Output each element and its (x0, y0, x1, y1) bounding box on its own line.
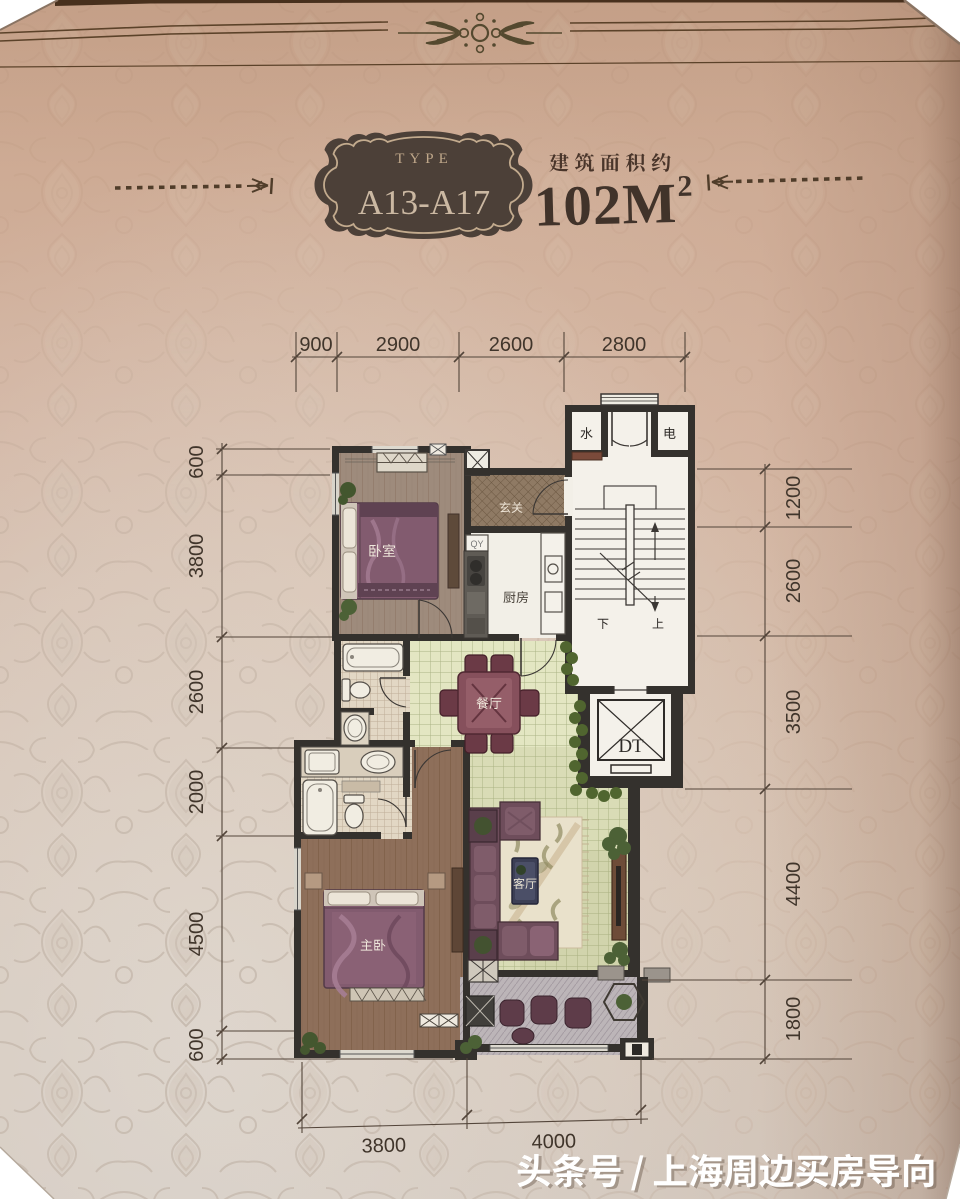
svg-text:3800: 3800 (361, 1134, 406, 1157)
svg-text:3800: 3800 (186, 534, 208, 579)
svg-text:2: 2 (677, 170, 693, 203)
svg-text:4000: 4000 (531, 1130, 576, 1153)
svg-text:2600: 2600 (783, 559, 805, 604)
svg-text:4500: 4500 (186, 912, 208, 957)
svg-text:1800: 1800 (783, 997, 805, 1042)
svg-text:600: 600 (186, 1028, 208, 1061)
svg-text:2900: 2900 (376, 334, 421, 356)
svg-text:900: 900 (299, 334, 332, 356)
svg-text:A13-A17: A13-A17 (358, 183, 490, 222)
svg-text:QY: QY (470, 539, 483, 549)
svg-text:2000: 2000 (186, 770, 208, 815)
svg-text:3500: 3500 (783, 690, 805, 735)
svg-text:102M: 102M (533, 172, 678, 239)
svg-text:1200: 1200 (783, 476, 805, 521)
svg-text:2600: 2600 (186, 670, 208, 715)
svg-text:600: 600 (186, 445, 208, 478)
svg-text:4400: 4400 (783, 862, 805, 907)
svg-text:TYPE: TYPE (395, 151, 453, 167)
svg-text:2600: 2600 (489, 334, 534, 356)
svg-text:DT: DT (618, 736, 644, 757)
svg-text:2800: 2800 (602, 334, 647, 356)
